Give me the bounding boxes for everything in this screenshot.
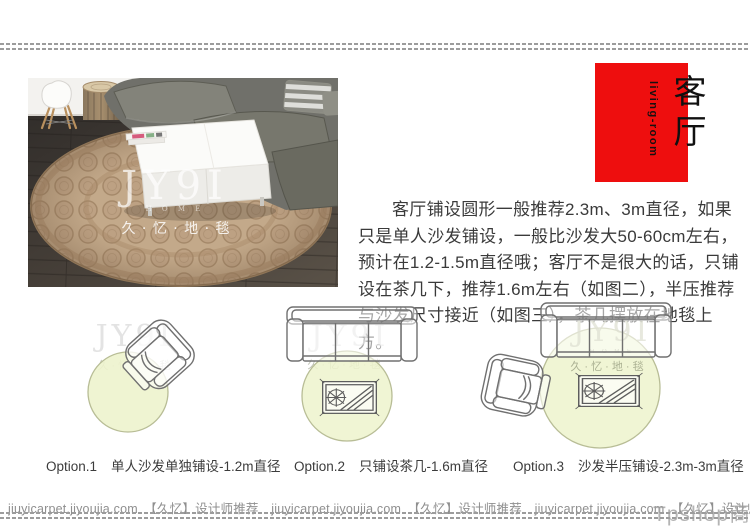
bottom-divider bbox=[0, 512, 750, 519]
option3-text: 沙发半压铺设-2.3m-3m直径 bbox=[578, 459, 744, 474]
magazines bbox=[126, 131, 167, 145]
option2-caption: Option.2只铺设茶几-1.6m直径 bbox=[294, 455, 488, 475]
living-room-photo: JY9I H O M E 久 · 忆 · 地 · 毯 bbox=[28, 78, 338, 287]
option1-caption: Option.1单人沙发单独铺设-1.2m直径 bbox=[46, 455, 281, 475]
svg-text:JY9I: JY9I bbox=[117, 163, 229, 209]
section-title-en: living-room bbox=[647, 81, 659, 157]
diagram-option2: JY9I 久 · 忆 · 地 · 毯 bbox=[280, 298, 420, 444]
svg-text:H O M E: H O M E bbox=[146, 205, 205, 213]
option1-text: 单人沙发单独铺设-1.2m直径 bbox=[111, 459, 281, 474]
diagram-option3: JY9I H O M E 久 · 忆 · 地 · 毯 bbox=[478, 293, 678, 453]
svg-text:久 · 忆 · 地 · 毯: 久 · 忆 · 地 · 毯 bbox=[121, 221, 230, 237]
page: { "brand": { "logo": "JY9I", "home": "H … bbox=[0, 0, 750, 524]
option2-text: 只铺设茶几-1.6m直径 bbox=[359, 459, 488, 474]
option1-label: Option.1 bbox=[46, 459, 97, 474]
svg-text:久 · 忆 · 地 · 毯: 久 · 忆 · 地 · 毯 bbox=[570, 359, 643, 373]
diagram-option1: JY9I 久 · 忆 · 地 · 毯 bbox=[80, 308, 210, 443]
option2-label: Option.2 bbox=[294, 459, 345, 474]
photo-watermark: JY9I H O M E 久 · 忆 · 地 · 毯 bbox=[117, 163, 230, 237]
armchair-top-view-icon bbox=[479, 352, 553, 420]
top-divider bbox=[0, 43, 750, 50]
option3-label: Option.3 bbox=[513, 459, 564, 474]
coffee-table-icon bbox=[320, 379, 379, 416]
sofa-top-view-icon bbox=[541, 303, 671, 357]
sofa-top-view-icon bbox=[287, 307, 417, 361]
option3-caption: Option.3沙发半压铺设-2.3m-3m直径 bbox=[513, 455, 744, 475]
section-title-cn: 客厅 bbox=[663, 74, 711, 154]
coffee-table-icon bbox=[576, 373, 643, 409]
